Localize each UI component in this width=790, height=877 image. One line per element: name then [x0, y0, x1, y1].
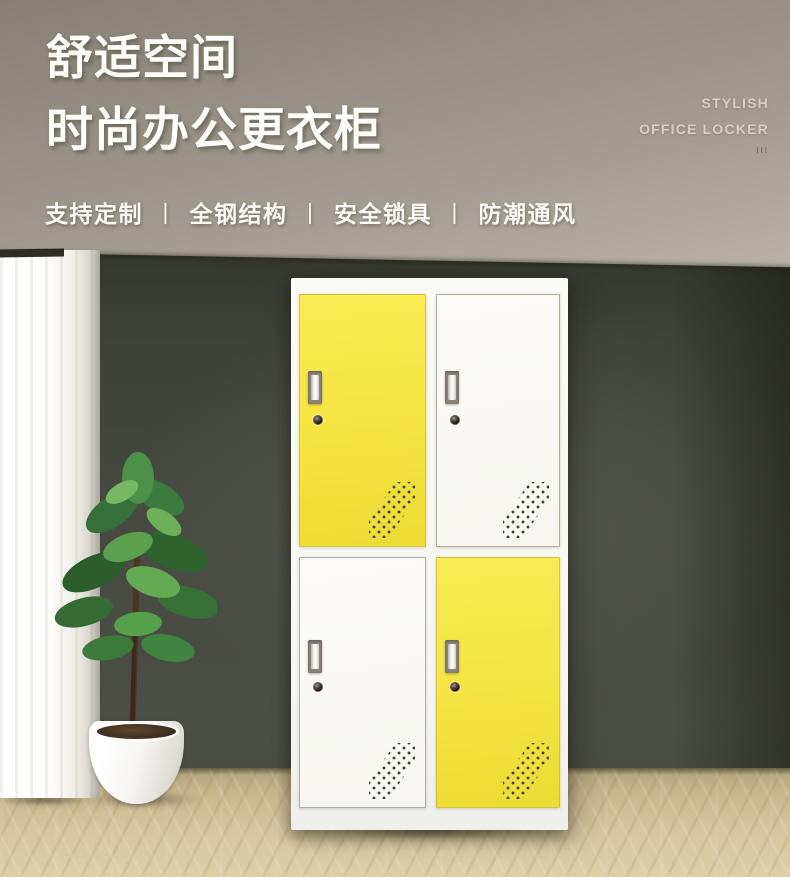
handle-recess — [311, 644, 319, 669]
feature-item: 支持定制 — [45, 201, 143, 227]
title-line-2: 时尚办公更衣柜 — [46, 94, 382, 166]
tagline-line-2: OFFICE LOCKER — [639, 121, 769, 137]
handle-recess — [448, 375, 456, 400]
locker-door-bottom-right — [436, 557, 560, 808]
english-tagline: STYLISH OFFICE LOCKER III — [639, 95, 769, 155]
feature-separator: 丨 — [154, 201, 179, 227]
vent-holes-icon — [503, 743, 549, 799]
page-title: 舒适空间 时尚办公更衣柜 — [46, 22, 382, 166]
feature-item: 全钢结构 — [190, 201, 288, 227]
keyhole-icon — [313, 682, 323, 692]
tagline-line-1: STYLISH — [639, 95, 769, 111]
vent-holes-icon — [503, 482, 549, 538]
door-handle — [308, 640, 322, 673]
keyhole-icon — [313, 415, 323, 425]
vent-holes-icon — [369, 482, 415, 538]
locker-door-bottom-left — [299, 557, 426, 808]
locker-door-top-right — [436, 294, 560, 547]
door-handle — [445, 371, 459, 404]
pot-soil — [97, 724, 176, 739]
locker-door-top-left — [299, 294, 426, 547]
handle-recess — [448, 644, 456, 669]
vent-holes-icon — [369, 743, 415, 799]
locker-cabinet — [291, 278, 568, 830]
curtain-rod-shadow — [0, 248, 64, 257]
locker-doors — [291, 278, 568, 808]
triple-bars-icon: III — [639, 146, 769, 155]
door-handle — [308, 371, 322, 404]
product-scene: 舒适空间 时尚办公更衣柜 STYLISH OFFICE LOCKER III 支… — [0, 0, 790, 877]
feature-separator: 丨 — [443, 201, 468, 227]
handle-recess — [311, 375, 319, 400]
feature-list: 支持定制丨全钢结构丨安全锁具丨防潮通风 — [45, 195, 577, 229]
keyhole-icon — [450, 682, 460, 692]
feature-separator: 丨 — [299, 201, 324, 227]
feature-item: 防潮通风 — [479, 201, 577, 227]
title-line-1: 舒适空间 — [46, 22, 382, 94]
door-handle — [445, 640, 459, 673]
plant-foliage — [52, 452, 217, 742]
feature-item: 安全锁具 — [334, 201, 432, 227]
keyhole-icon — [450, 415, 460, 425]
